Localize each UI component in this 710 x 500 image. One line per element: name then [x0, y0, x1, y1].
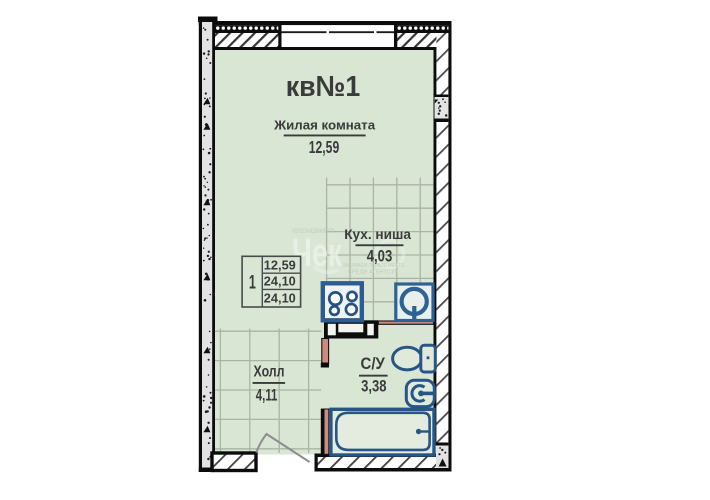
- svg-text:1: 1: [249, 272, 256, 293]
- svg-text:12,59: 12,59: [309, 137, 339, 157]
- svg-text:4,03: 4,03: [367, 246, 393, 265]
- svg-text:кв№1: кв№1: [286, 71, 361, 103]
- svg-text:3,38: 3,38: [361, 377, 386, 395]
- svg-text:24,10: 24,10: [264, 274, 296, 289]
- svg-text:СРЕДИ АГЕНТСТВ: СРЕДИ АГЕНТСТВ: [348, 270, 398, 276]
- svg-text:Холл: Холл: [254, 364, 285, 381]
- svg-text:12,59: 12,59: [264, 258, 296, 273]
- svg-text:24,10: 24,10: [264, 291, 296, 306]
- svg-text:Жилая комната: Жилая комната: [273, 117, 376, 132]
- svg-text:С/У: С/У: [361, 355, 386, 373]
- svg-text:4,11: 4,11: [256, 386, 278, 404]
- svg-text:Кух. ниша: Кух. ниша: [344, 227, 411, 243]
